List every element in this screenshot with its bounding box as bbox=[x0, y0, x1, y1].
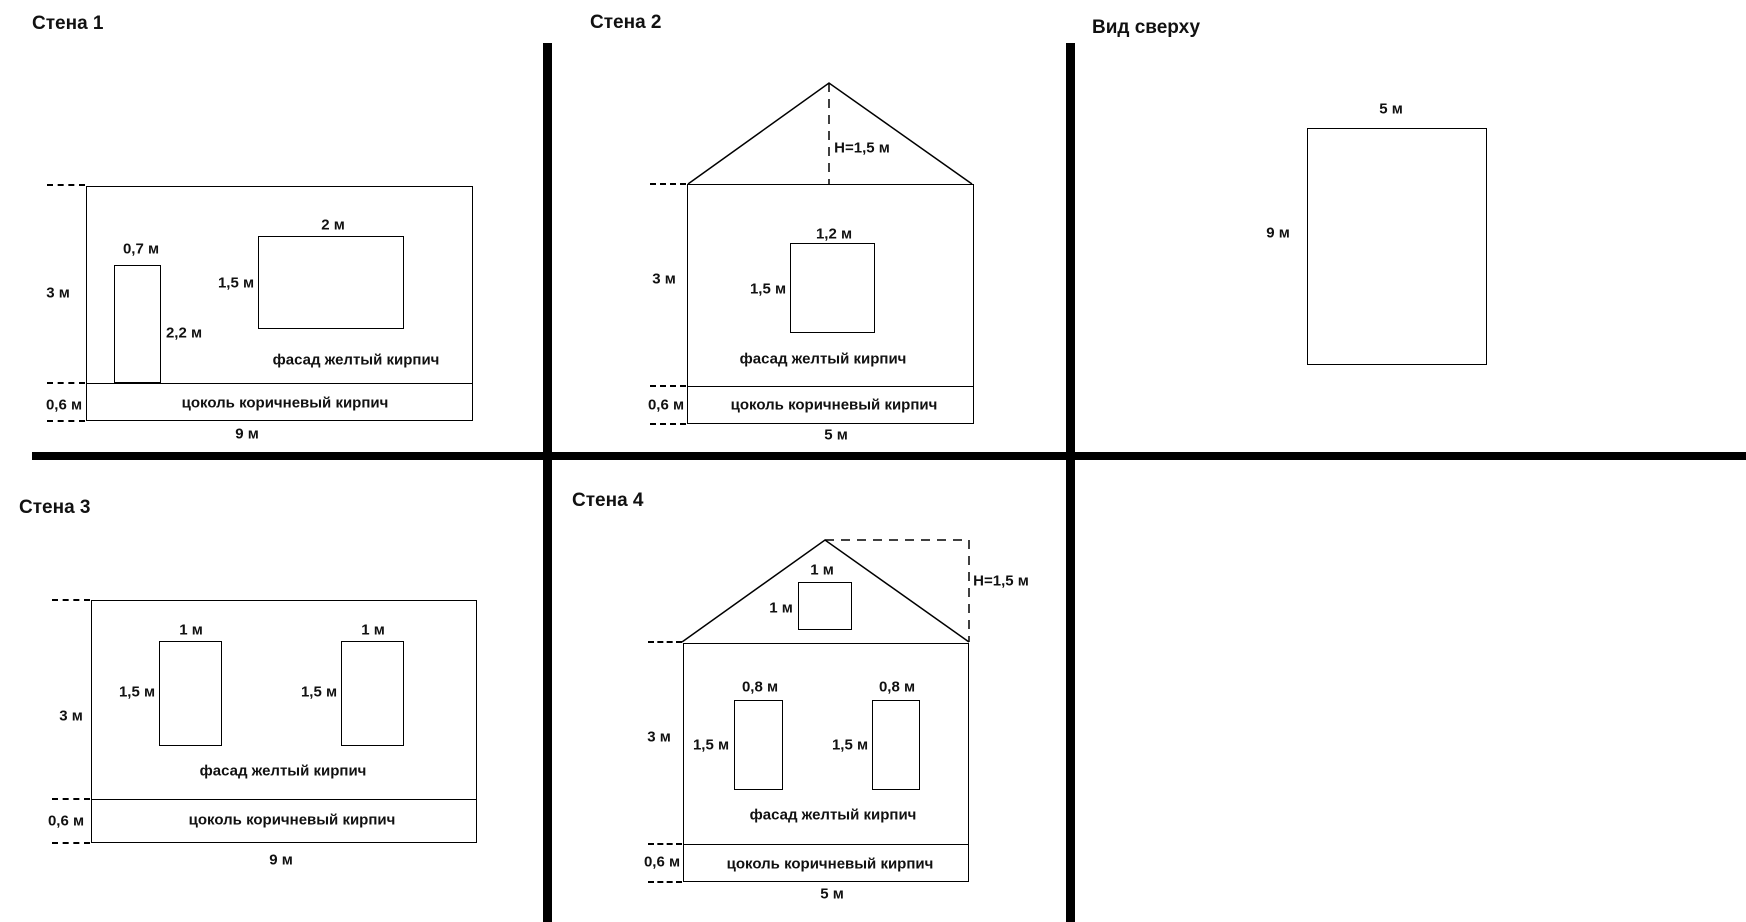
wall4-tick-plinth-top bbox=[648, 843, 682, 845]
wall3-facade-caption: фасад желтый кирпич bbox=[200, 764, 367, 779]
topview-title: Вид сверху bbox=[1092, 18, 1200, 37]
wall2-facade-caption: фасад желтый кирпич bbox=[740, 352, 907, 367]
wall3-outline bbox=[91, 600, 477, 843]
wall4-window-left bbox=[734, 700, 783, 790]
wall3-tick-bottom bbox=[52, 842, 90, 844]
wall1-door-height-dim: 2,2 м bbox=[166, 326, 202, 341]
wall3-window-right-width-dim: 1 м bbox=[361, 623, 385, 638]
wall3-tick-top bbox=[52, 599, 90, 601]
wall1-plinth-height-dim: 0,6 м bbox=[46, 398, 82, 413]
wall3-plinth-caption: цоколь коричневый кирпич bbox=[189, 813, 396, 828]
wall1-window bbox=[258, 236, 404, 329]
wall1-door bbox=[114, 265, 161, 383]
wall3-window-left-width-dim: 1 м bbox=[179, 623, 203, 638]
divider-vertical-right bbox=[1066, 43, 1075, 922]
wall3-plinth-height-dim: 0,6 м bbox=[48, 814, 84, 829]
wall2-tick-bottom bbox=[650, 423, 686, 425]
wall4-roof-height-dim: H=1,5 м bbox=[973, 574, 1029, 589]
wall2-tick-plinth-top bbox=[650, 385, 686, 387]
wall3-window-right-height-dim: 1,5 м bbox=[301, 685, 337, 700]
wall4-width-dim: 5 м bbox=[820, 887, 844, 902]
wall4-window-left-width-dim: 0,8 м bbox=[742, 680, 778, 695]
wall1-facade-caption: фасад желтый кирпич bbox=[273, 353, 440, 368]
wall1-tick-top bbox=[47, 184, 85, 186]
wall4-tick-bottom bbox=[648, 881, 682, 883]
wall4-window-right-height-dim: 1,5 м bbox=[832, 738, 868, 753]
wall2-tick-top bbox=[650, 183, 686, 185]
divider-vertical-left bbox=[543, 43, 552, 922]
wall3-height-dim: 3 м bbox=[59, 709, 83, 724]
wall3-window-right bbox=[341, 641, 404, 746]
wall2-height-dim: 3 м bbox=[652, 272, 676, 287]
wall4-gable-window-height-dim: 1 м bbox=[769, 601, 793, 616]
wall1-height-dim: 3 м bbox=[46, 286, 70, 301]
wall3-tick-plinth-top bbox=[52, 798, 90, 800]
blueprint-canvas: Стена 1 0,7 м 2,2 м 2 м 1,5 м 3 м 0,6 м … bbox=[0, 0, 1746, 922]
wall1-title: Стена 1 bbox=[32, 14, 103, 33]
wall1-plinth-line bbox=[86, 383, 473, 384]
wall1-plinth-caption: цоколь коричневый кирпич bbox=[182, 396, 389, 411]
wall2-plinth-line bbox=[687, 386, 974, 387]
wall4-plinth-height-dim: 0,6 м bbox=[644, 855, 680, 870]
divider-horizontal bbox=[32, 452, 1746, 460]
wall1-width-dim: 9 м bbox=[235, 427, 259, 442]
wall2-window bbox=[790, 243, 875, 333]
wall1-door-width-dim: 0,7 м bbox=[123, 242, 159, 257]
wall2-roof bbox=[655, 76, 977, 188]
wall4-gable-window bbox=[798, 582, 852, 630]
wall3-plinth-line bbox=[91, 799, 477, 800]
wall4-gable-window-width-dim: 1 м bbox=[810, 563, 834, 578]
wall4-window-right-width-dim: 0,8 м bbox=[879, 680, 915, 695]
topview-rect bbox=[1307, 128, 1487, 365]
wall2-title: Стена 2 bbox=[590, 13, 661, 32]
wall4-plinth-line bbox=[683, 844, 969, 845]
topview-width-dim: 5 м bbox=[1379, 102, 1403, 117]
wall1-window-height-dim: 1,5 м bbox=[218, 276, 254, 291]
wall2-window-width-dim: 1,2 м bbox=[816, 227, 852, 242]
wall4-window-right bbox=[872, 700, 920, 790]
wall2-window-height-dim: 1,5 м bbox=[750, 282, 786, 297]
wall4-height-dim: 3 м bbox=[647, 730, 671, 745]
wall1-window-width-dim: 2 м bbox=[321, 218, 345, 233]
wall4-plinth-caption: цоколь коричневый кирпич bbox=[727, 857, 934, 872]
wall2-width-dim: 5 м bbox=[824, 428, 848, 443]
wall1-tick-bottom bbox=[47, 420, 85, 422]
topview-depth-dim: 9 м bbox=[1266, 226, 1290, 241]
wall4-title: Стена 4 bbox=[572, 491, 643, 510]
wall2-plinth-height-dim: 0,6 м bbox=[648, 398, 684, 413]
wall3-width-dim: 9 м bbox=[269, 853, 293, 868]
wall3-window-left bbox=[159, 641, 222, 746]
wall4-facade-caption: фасад желтый кирпич bbox=[750, 808, 917, 823]
wall4-outline bbox=[683, 643, 969, 882]
wall2-plinth-caption: цоколь коричневый кирпич bbox=[731, 398, 938, 413]
wall3-window-left-height-dim: 1,5 м bbox=[119, 685, 155, 700]
wall3-title: Стена 3 bbox=[19, 498, 90, 517]
wall4-tick-top bbox=[648, 641, 682, 643]
wall1-tick-plinth-top bbox=[47, 382, 85, 384]
wall4-window-left-height-dim: 1,5 м bbox=[693, 738, 729, 753]
wall2-roof-height-dim: H=1,5 м bbox=[834, 141, 890, 156]
